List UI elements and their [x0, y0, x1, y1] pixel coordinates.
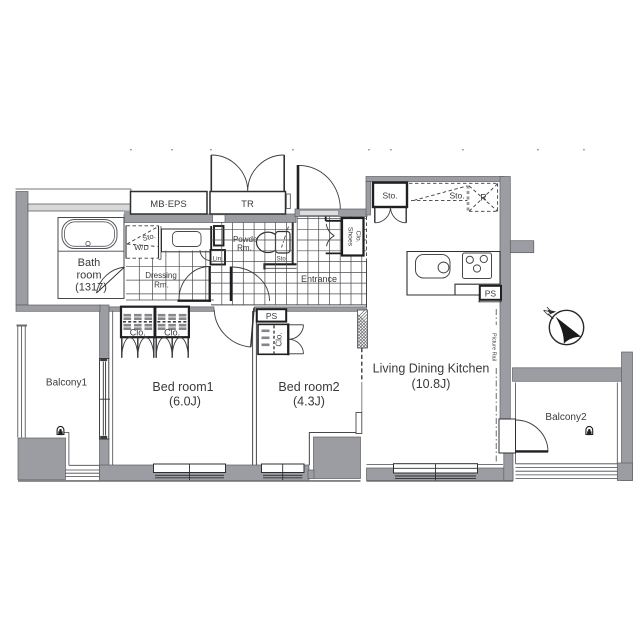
- svg-text:(10.8J): (10.8J): [412, 377, 451, 391]
- svg-text:Bath: Bath: [78, 257, 101, 269]
- svg-text:(4.3J): (4.3J): [293, 395, 325, 409]
- svg-text:Dressing: Dressing: [145, 271, 177, 280]
- svg-text:Sto.: Sto.: [382, 191, 397, 201]
- svg-text:Clo.: Clo.: [275, 332, 284, 346]
- svg-text:Balcony2: Balcony2: [545, 412, 587, 423]
- svg-text:Living Dining Kitchen: Living Dining Kitchen: [373, 362, 490, 376]
- svg-text:Picture Rail: Picture Rail: [491, 333, 497, 361]
- svg-text:Shoes: Shoes: [347, 227, 354, 247]
- svg-text:Sto.: Sto.: [449, 191, 464, 201]
- svg-text:Balcony1: Balcony1: [46, 378, 88, 389]
- svg-text:Rm.: Rm.: [154, 281, 169, 290]
- svg-text:R: R: [480, 193, 487, 203]
- svg-text:Clo.: Clo.: [130, 328, 146, 338]
- svg-text:Bed room2: Bed room2: [278, 380, 339, 394]
- svg-text:TR: TR: [241, 199, 254, 210]
- svg-text:Clo.: Clo.: [164, 328, 180, 338]
- svg-text:Entrance: Entrance: [301, 274, 337, 284]
- svg-text:W/D: W/D: [134, 243, 149, 252]
- svg-text:room: room: [76, 270, 101, 282]
- svg-text:MB·EPS: MB·EPS: [150, 199, 186, 210]
- svg-text:PS: PS: [485, 288, 497, 298]
- svg-text:(6.0J): (6.0J): [169, 395, 201, 409]
- svg-text:Bed room1: Bed room1: [152, 380, 213, 394]
- svg-text:PS: PS: [266, 311, 278, 321]
- svg-text:Clo.: Clo.: [355, 230, 362, 242]
